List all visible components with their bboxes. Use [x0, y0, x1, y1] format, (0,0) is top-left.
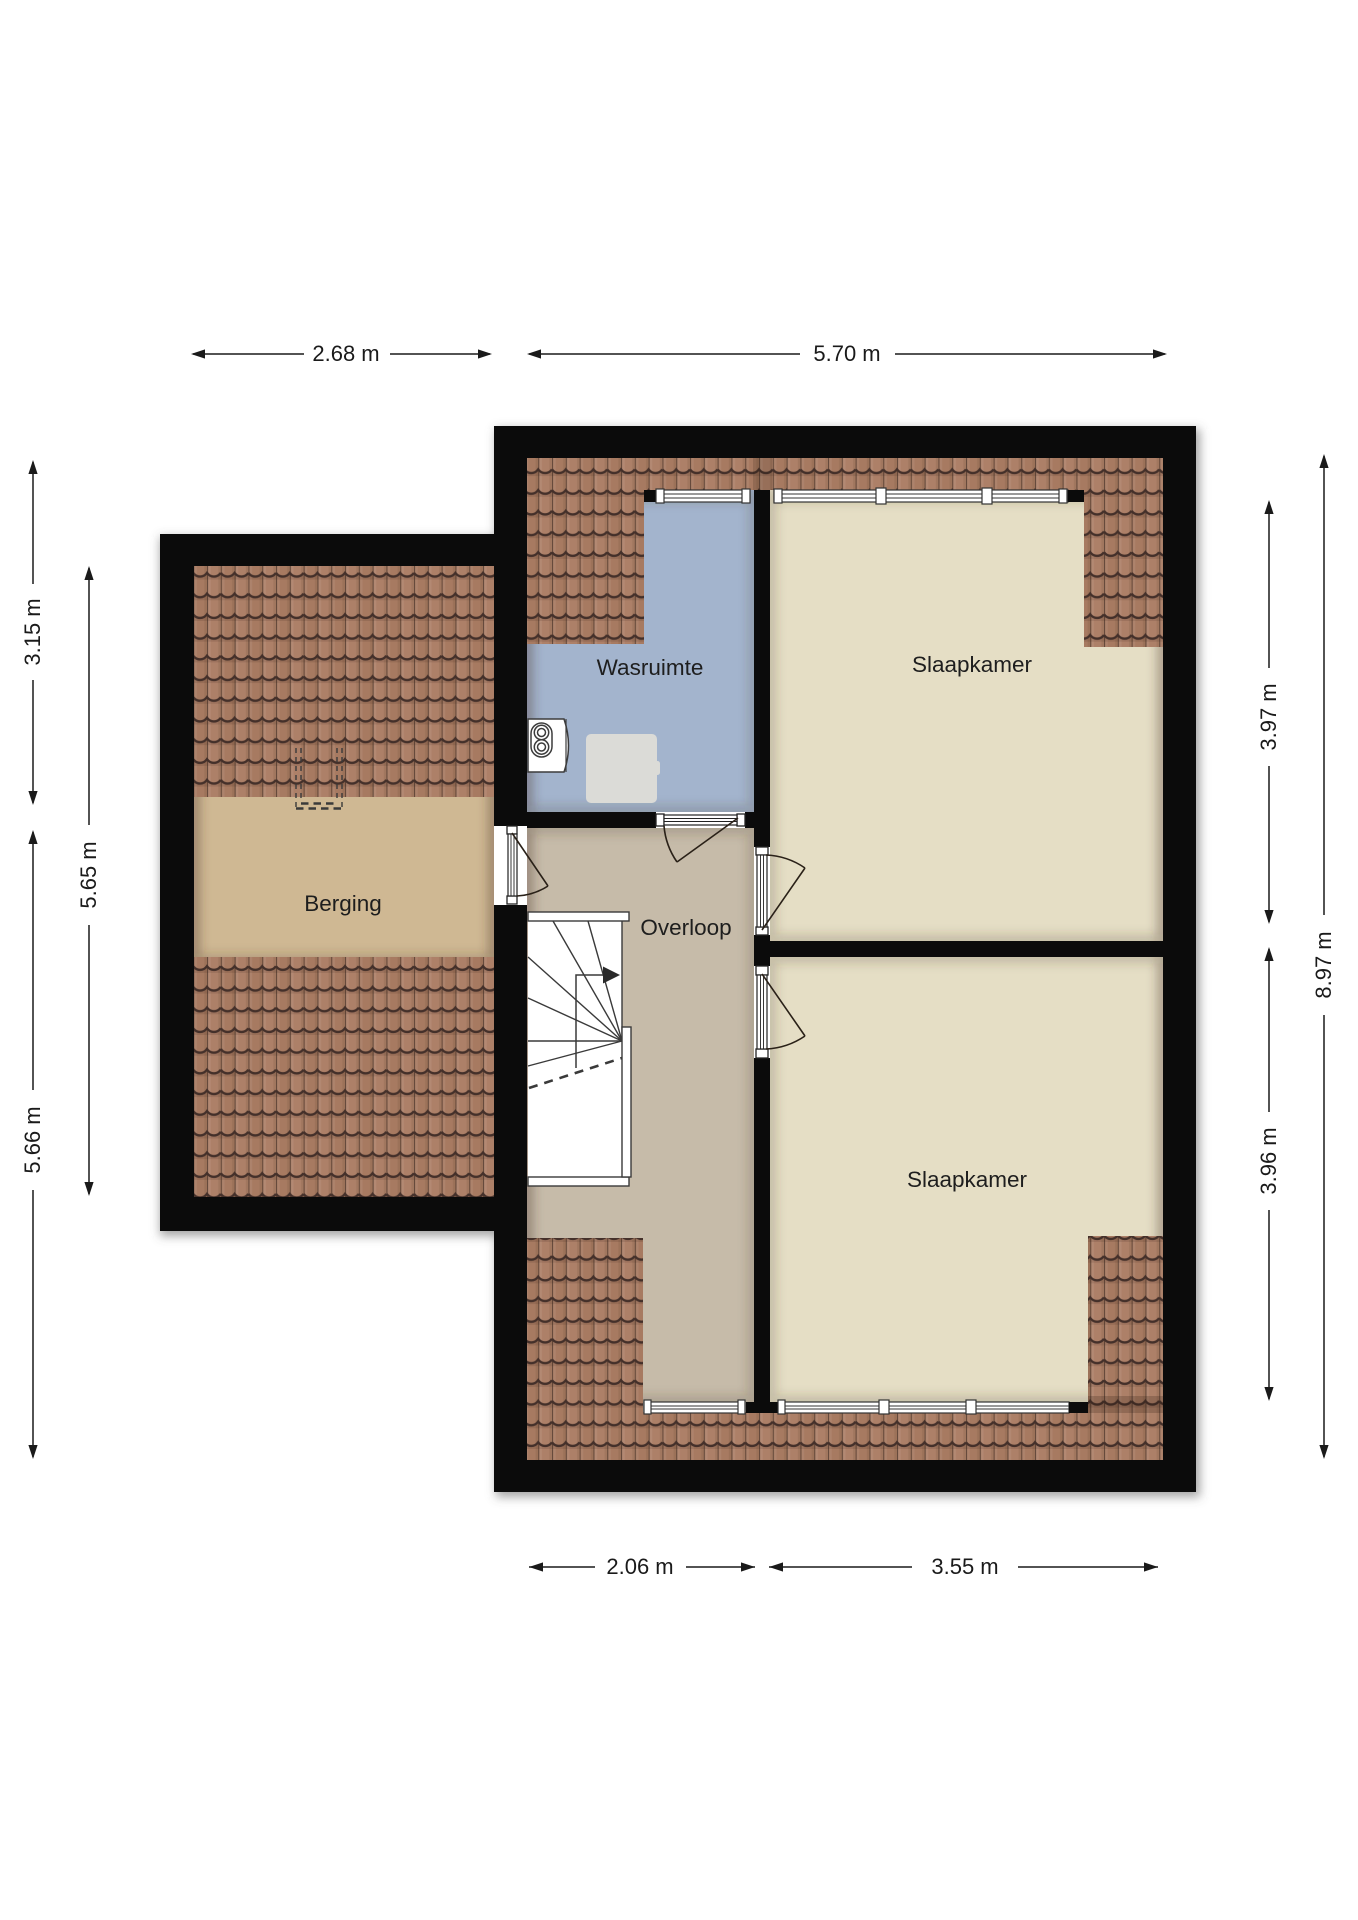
svg-text:3.96 m: 3.96 m [1256, 1127, 1281, 1194]
svg-text:3.15 m: 3.15 m [20, 598, 45, 665]
svg-text:Slaapkamer: Slaapkamer [912, 652, 1033, 677]
svg-text:5.70 m: 5.70 m [813, 341, 880, 366]
svg-text:5.66 m: 5.66 m [20, 1106, 45, 1173]
svg-text:3.55 m: 3.55 m [931, 1554, 998, 1579]
svg-text:Wasruimte: Wasruimte [597, 655, 704, 680]
svg-text:2.68 m: 2.68 m [312, 341, 379, 366]
svg-text:3.97 m: 3.97 m [1256, 683, 1281, 750]
svg-text:2.06 m: 2.06 m [606, 1554, 673, 1579]
svg-text:8.97 m: 8.97 m [1311, 931, 1336, 998]
svg-text:Berging: Berging [304, 891, 382, 916]
svg-text:5.65 m: 5.65 m [76, 841, 101, 908]
svg-text:Overloop: Overloop [640, 915, 731, 940]
svg-text:Slaapkamer: Slaapkamer [907, 1167, 1028, 1192]
